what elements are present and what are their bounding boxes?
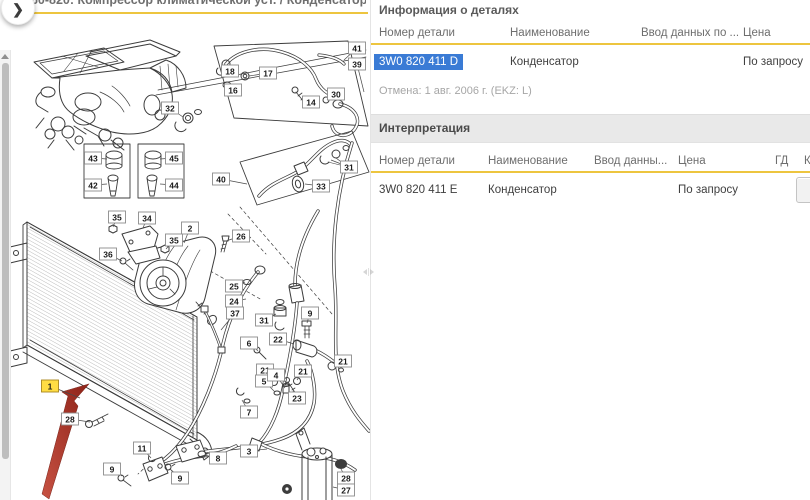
panel-splitter-handle[interactable] [359,265,377,278]
add-to-cart-button[interactable] [796,177,810,203]
callout-36[interactable]: 36 [100,248,123,261]
svg-text:42: 42 [88,181,98,191]
callout-35[interactable]: 35 [109,211,126,227]
callout-18[interactable]: 18 [222,65,239,77]
info-table-header: Номер детали Наименование Ввод данных по… [371,24,810,45]
part-number: 3W0 820 411 E [379,184,488,196]
callout-41[interactable]: 41 [344,42,366,60]
callout-27[interactable]: 27 [333,484,355,496]
svg-text:9: 9 [110,465,115,475]
col-name: Наименование [488,155,594,167]
splitter-right-icon [370,269,374,275]
callout-11[interactable]: 11 [134,442,152,458]
svg-text:14: 14 [306,98,316,108]
svg-text:43: 43 [88,154,98,164]
col-name: Наименование [510,27,641,39]
callout-34[interactable]: 34 [139,212,156,228]
svg-text:5: 5 [262,377,267,387]
callout-45[interactable]: 45 [160,152,183,164]
svg-text:39: 39 [352,60,362,70]
svg-text:31: 31 [344,163,354,173]
svg-text:30: 30 [331,90,341,100]
svg-text:44: 44 [169,181,179,191]
part-name: Конденсатор [488,184,594,196]
part-name: Конденсатор [510,56,641,68]
svg-text:22: 22 [273,335,283,345]
svg-text:28: 28 [341,474,351,484]
title-underline [22,12,368,14]
svg-text:23: 23 [292,394,302,404]
svg-text:37: 37 [230,309,240,319]
interpretation-table-row[interactable]: 3W0 820 411 E Конденсатор По запросу [371,173,810,207]
discontinued-note: Отмена: 1 авг. 2006 г. (EKZ: L) [371,79,810,102]
callout-21[interactable]: 21 [334,355,352,367]
callout-26[interactable]: 26 [226,230,250,242]
heater-box [34,40,186,150]
callout-31[interactable]: 31 [331,160,358,173]
selected-part-number[interactable]: 3W0 820 411 D [374,54,463,70]
svg-text:34: 34 [142,214,152,224]
svg-text:25: 25 [229,282,239,292]
callout-16[interactable]: 16 [225,84,242,96]
col-price: Цена [743,27,810,39]
svg-text:4: 4 [274,371,279,381]
scrollbar-thumb[interactable] [2,63,9,459]
svg-text:7: 7 [247,408,252,418]
info-table-row[interactable]: 3W0 820 411 D Конденсатор По запросу [371,45,810,79]
svg-text:11: 11 [138,444,147,454]
svg-text:31: 31 [259,316,269,326]
col-gd: ГД [775,155,804,167]
diagram-panel: 3243424544413918161714303140332623435353… [0,0,370,500]
col-cart: К [804,155,810,167]
receiver-drier [283,428,347,500]
diagram-title: 260-820: Компрессор климатической уст. /… [24,0,366,7]
svg-text:16: 16 [228,86,238,96]
scroll-up-icon[interactable] [1,54,9,59]
svg-text:33: 33 [316,182,326,192]
svg-text:27: 27 [341,486,351,496]
callout-9[interactable]: 9 [104,463,123,476]
svg-text:9: 9 [178,474,183,484]
svg-text:3: 3 [247,447,252,457]
svg-text:35: 35 [169,236,179,246]
svg-text:21: 21 [298,367,308,377]
callout-23[interactable]: 23 [289,391,306,404]
callout-44[interactable]: 44 [160,179,183,191]
svg-text:2: 2 [188,224,193,234]
svg-text:32: 32 [165,104,175,114]
svg-text:21: 21 [338,357,348,367]
callout-3[interactable]: 3 [241,445,268,457]
svg-text:17: 17 [263,69,273,79]
splitter-left-icon [363,269,367,275]
callout-22[interactable]: 22 [270,333,295,345]
hose-group-top [214,41,368,166]
callout-28[interactable]: 28 [338,469,355,484]
callout-25[interactable]: 25 [226,280,246,292]
svg-text:6: 6 [247,339,252,349]
vertical-scrollbar[interactable] [0,50,11,500]
col-part-number: Номер детали [379,155,488,167]
svg-text:28: 28 [65,415,75,425]
col-data-entry: Ввод данны... [594,155,678,167]
callout-9[interactable]: 9 [171,470,189,484]
pointer-arrow [42,384,89,499]
callout-42[interactable]: 42 [85,179,108,191]
parts-catalog-window: 3243424544413918161714303140332623435353… [0,0,810,500]
callout-14[interactable]: 14 [303,96,320,108]
callout-24[interactable]: 24 [226,295,247,307]
callout-30[interactable]: 30 [327,88,345,100]
callout-6[interactable]: 6 [241,337,259,351]
interpretation-section-title: Интерпретация [371,114,810,143]
svg-text:9: 9 [308,309,313,319]
diagram-artwork [10,40,369,500]
svg-text:36: 36 [103,250,113,260]
info-section-title: Информация о деталях [371,0,810,17]
svg-text:45: 45 [169,154,179,164]
callout-31[interactable]: 31 [256,314,277,326]
svg-text:24: 24 [229,297,239,307]
col-price: Цена [678,155,775,167]
part-price: По запросу [678,184,775,196]
col-data-entry: Ввод данных по ... [641,27,743,39]
svg-text:18: 18 [225,67,235,77]
part-price: По запросу [743,56,810,68]
svg-text:26: 26 [236,232,246,242]
exploded-diagram[interactable]: 3243424544413918161714303140332623435353… [0,0,370,500]
callout-37[interactable]: 37 [221,307,244,330]
svg-text:1: 1 [48,382,53,392]
interpretation-table-header: Номер детали Наименование Ввод данны... … [371,151,810,173]
splitter-bar [368,268,369,276]
details-panel: Информация о деталях Номер детали Наимен… [370,0,810,500]
svg-text:40: 40 [216,175,226,185]
svg-text:8: 8 [216,454,221,464]
callout-43[interactable]: 43 [85,152,108,164]
callout-40[interactable]: 40 [213,173,248,185]
svg-text:35: 35 [112,213,122,223]
svg-text:41: 41 [352,44,362,54]
col-part-number: Номер детали [379,27,510,39]
callout-39[interactable]: 39 [349,58,366,92]
